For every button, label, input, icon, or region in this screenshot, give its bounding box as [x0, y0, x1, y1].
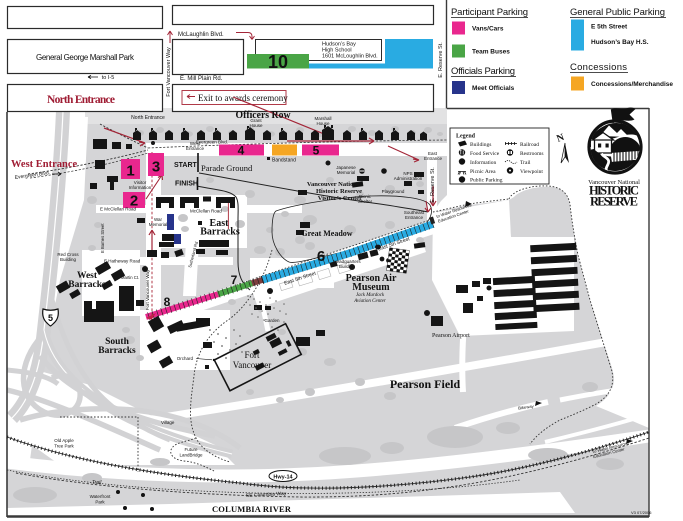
svg-text:7: 7 [231, 273, 238, 287]
svg-text:P: P [268, 289, 271, 294]
svg-text:5: 5 [48, 313, 53, 323]
svg-text:Pearson Field: Pearson Field [390, 377, 461, 391]
svg-text:E Hatheway Road: E Hatheway Road [104, 259, 141, 264]
svg-text:Hudson’s Bay H.S.: Hudson’s Bay H.S. [591, 39, 649, 46]
svg-text:Participant Parking: Participant Parking [451, 7, 528, 18]
svg-text:Garden: Garden [264, 318, 280, 323]
svg-text:Shelter: Shelter [358, 199, 373, 204]
svg-text:North Entrance: North Entrance [47, 94, 115, 106]
svg-text:Vans/Cars: Vans/Cars [472, 26, 504, 33]
svg-text:E. Reserve St.: E. Reserve St. [430, 167, 436, 203]
svg-text:E 5th Street: E 5th Street [591, 24, 628, 31]
svg-text:E Barnes Street: E Barnes Street [100, 223, 105, 253]
svg-text:Legend: Legend [456, 134, 476, 140]
svg-text:START: START [174, 162, 198, 169]
svg-text:Food Service: Food Service [470, 151, 500, 157]
svg-text:Tree Park: Tree Park [54, 444, 74, 449]
svg-text:Picnic Area: Picnic Area [470, 169, 496, 175]
svg-text:Administration: Administration [394, 176, 423, 181]
svg-text:Village: Village [161, 420, 175, 425]
svg-text:LandBridge: LandBridge [179, 453, 203, 458]
svg-text:Concessions: Concessions [570, 62, 627, 73]
svg-text:General Public Parking: General Public Parking [570, 7, 665, 18]
svg-text:Old Apple: Old Apple [54, 438, 74, 443]
svg-text:P: P [425, 311, 428, 316]
svg-text:to I-5: to I-5 [102, 75, 115, 81]
svg-text:Jack Murdock: Jack Murdock [356, 293, 385, 298]
svg-text:Memorial: Memorial [337, 170, 356, 175]
svg-text:Martin Ct.: Martin Ct. [121, 275, 139, 280]
svg-text:Pearson Airport: Pearson Airport [432, 333, 470, 339]
svg-text:Entrance: Entrance [405, 215, 424, 220]
svg-text:Officials Parking: Officials Parking [451, 66, 515, 77]
svg-text:Evergreen Blvd.: Evergreen Blvd. [196, 140, 228, 145]
svg-text:Great Meadow: Great Meadow [301, 229, 352, 238]
svg-text:Orchard: Orchard [177, 356, 194, 361]
svg-text:Railroad: Railroad [520, 142, 539, 148]
svg-text:Barracks: Barracks [68, 280, 106, 290]
svg-text:Fort Vancouver Way: Fort Vancouver Way [145, 269, 150, 310]
svg-text:Buildings: Buildings [470, 142, 491, 148]
svg-text:P: P [143, 267, 146, 272]
svg-text:Waterfront: Waterfront [90, 494, 112, 499]
svg-text:General George Marshall Park: General George Marshall Park [36, 53, 135, 62]
svg-text:P: P [460, 178, 464, 184]
svg-text:North Entrance: North Entrance [131, 115, 165, 121]
svg-text:Fort: Fort [244, 350, 260, 360]
svg-text:FINISH: FINISH [175, 181, 198, 188]
svg-text:Barracks: Barracks [98, 346, 136, 356]
svg-text:Bandstand: Bandstand [272, 158, 296, 164]
svg-text:Memorial: Memorial [149, 222, 168, 227]
svg-text:Trail: Trail [520, 160, 531, 166]
svg-text:Building: Building [60, 257, 77, 262]
svg-text:4: 4 [238, 144, 245, 158]
svg-text:Concessions/Merchandise: Concessions/Merchandise [591, 81, 673, 88]
svg-text:Information: Information [129, 185, 152, 190]
svg-text:House: House [316, 121, 330, 126]
svg-text:Officers Row: Officers Row [236, 109, 291, 121]
svg-text:Historic Reserve: Historic Reserve [316, 188, 362, 195]
svg-text:COLUMBIA RIVER: COLUMBIA RIVER [212, 504, 292, 514]
svg-text:Park: Park [95, 500, 105, 505]
svg-text:Meet Officials: Meet Officials [472, 85, 515, 92]
svg-text:10: 10 [268, 52, 288, 72]
svg-text:Museum: Museum [352, 282, 390, 293]
svg-text:?: ? [383, 169, 386, 174]
svg-text:Parade Ground: Parade Ground [201, 163, 253, 173]
svg-text:V3 07/2006: V3 07/2006 [631, 510, 652, 515]
svg-text:Aviation Center: Aviation Center [353, 299, 386, 304]
svg-text:E. Reserve St.: E. Reserve St. [438, 42, 444, 78]
svg-text:3: 3 [152, 159, 160, 176]
svg-text:West Entrance: West Entrance [11, 159, 78, 170]
svg-text:Trail: Trail [92, 480, 102, 486]
svg-text:P: P [350, 265, 353, 270]
svg-text:RESERVE: RESERVE [590, 195, 638, 209]
svg-text:Playground: Playground [382, 189, 405, 194]
svg-text:6: 6 [317, 248, 325, 265]
svg-text:8: 8 [164, 295, 171, 309]
svg-text:Team Buses: Team Buses [472, 49, 510, 56]
svg-text:Barracks: Barracks [200, 227, 240, 238]
svg-text:Hwy-14: Hwy-14 [273, 475, 293, 481]
svg-text:Viewpoint: Viewpoint [520, 169, 543, 175]
svg-text:Restrooms: Restrooms [520, 151, 544, 157]
svg-text:Visitor’s Center: Visitor’s Center [318, 195, 362, 202]
svg-text:E McClellan Road: E McClellan Road [100, 207, 137, 212]
svg-text:House: House [249, 123, 263, 128]
svg-text:Entrance: Entrance [424, 156, 443, 161]
svg-text:Information: Information [470, 159, 497, 166]
svg-text:Vancouver: Vancouver [233, 360, 271, 370]
svg-text:5: 5 [313, 144, 320, 158]
svg-text:Entrance: Entrance [186, 146, 205, 151]
svg-text:Fort Vancouver Way: Fort Vancouver Way [166, 47, 172, 97]
svg-text:E. Mill Plain Rd.: E. Mill Plain Rd. [180, 76, 223, 82]
svg-text:McClellan Road: McClellan Road [190, 209, 222, 214]
svg-text:Future: Future [184, 447, 198, 452]
svg-text:1: 1 [126, 163, 134, 180]
svg-text:McLaughlin Blvd.: McLaughlin Blvd. [178, 32, 224, 38]
svg-text:1601 McLoughlin Blvd.: 1601 McLoughlin Blvd. [322, 54, 378, 60]
svg-text:Vancouver National: Vancouver National [307, 181, 362, 188]
svg-text:Public Parking: Public Parking [470, 178, 503, 184]
